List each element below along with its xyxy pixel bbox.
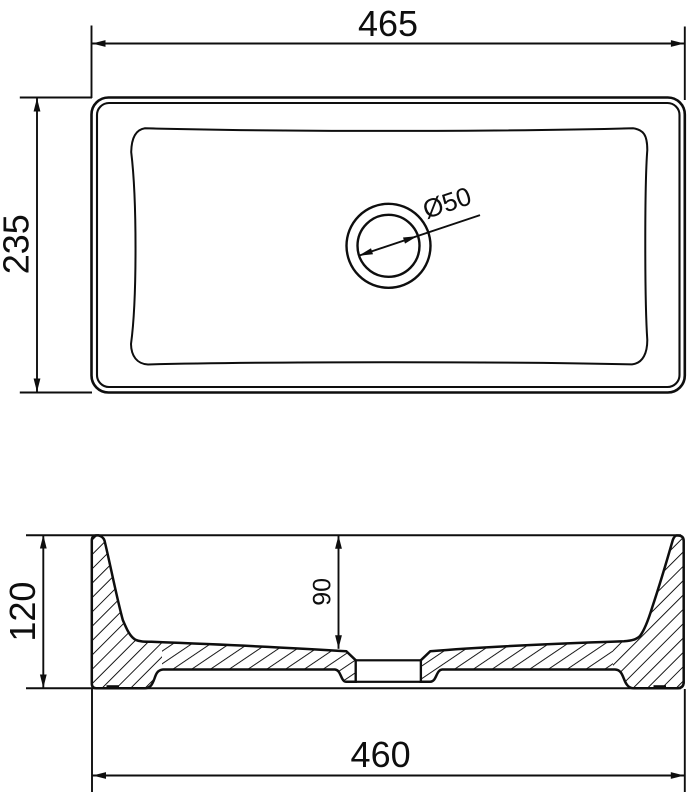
- svg-text:Ø50: Ø50: [419, 181, 475, 225]
- svg-text:90: 90: [309, 578, 337, 606]
- svg-text:460: 460: [351, 734, 411, 775]
- svg-text:465: 465: [358, 3, 418, 44]
- svg-text:120: 120: [2, 582, 43, 642]
- svg-text:235: 235: [0, 214, 37, 274]
